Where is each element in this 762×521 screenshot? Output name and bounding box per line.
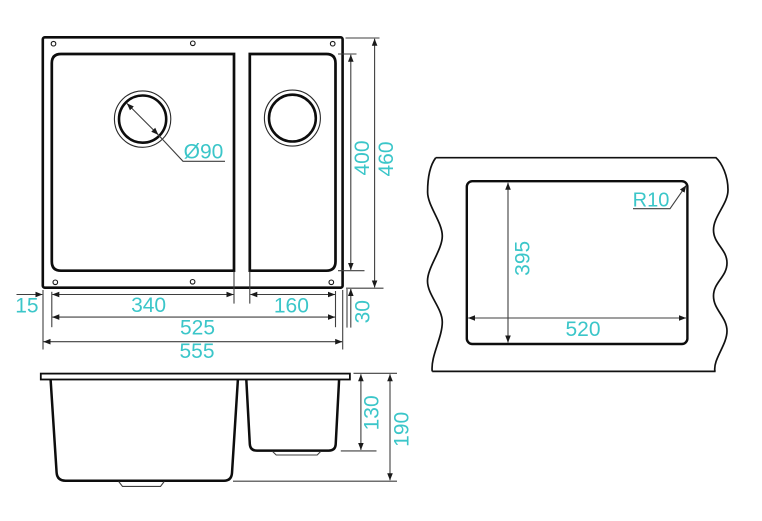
svg-text:520: 520 [565, 318, 600, 341]
svg-text:395: 395 [512, 241, 535, 276]
svg-text:R10: R10 [633, 190, 670, 212]
svg-text:555: 555 [179, 340, 214, 363]
svg-text:130: 130 [361, 395, 384, 430]
svg-text:340: 340 [131, 294, 166, 317]
svg-text:Ø90: Ø90 [184, 141, 224, 164]
svg-text:15: 15 [15, 295, 38, 318]
svg-text:190: 190 [391, 412, 414, 447]
svg-text:460: 460 [375, 141, 398, 176]
svg-text:525: 525 [180, 316, 215, 339]
svg-text:30: 30 [352, 300, 375, 323]
svg-text:400: 400 [351, 140, 374, 175]
svg-text:160: 160 [274, 295, 309, 318]
